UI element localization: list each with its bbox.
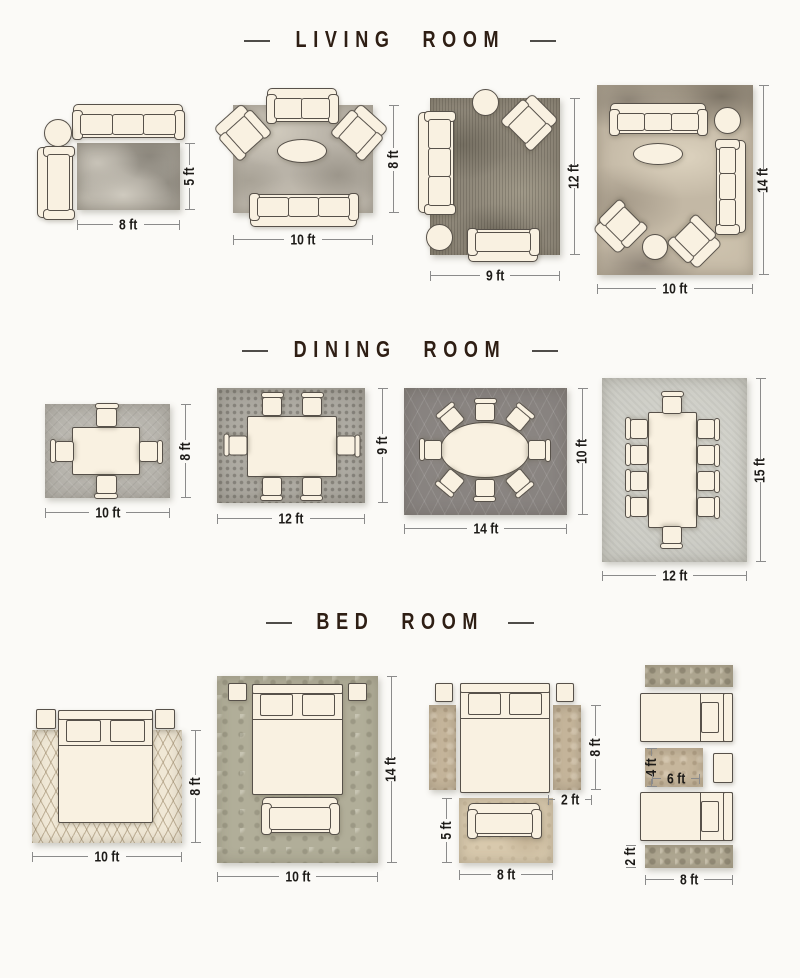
loveseat — [468, 803, 540, 837]
blanket-line — [461, 718, 549, 719]
dining-chair — [697, 497, 715, 517]
rug-height-dimension: 8 ft — [385, 105, 401, 213]
seat-cushion — [80, 114, 113, 135]
rug-height-dimension: 5 ft — [181, 143, 197, 210]
seat-cushions — [475, 813, 533, 834]
nightstand — [556, 683, 574, 702]
dining-chair — [262, 477, 282, 496]
dining-chair — [424, 440, 442, 460]
round-side-table — [44, 119, 72, 147]
pillow — [110, 720, 145, 742]
seat-cushion — [719, 173, 736, 200]
seat-cushion — [428, 176, 451, 206]
rug-height-dimension: 12 ft — [566, 98, 582, 255]
pillow — [66, 720, 101, 742]
chaise — [37, 147, 73, 218]
seat-cushion — [47, 154, 70, 211]
pillow — [468, 693, 501, 715]
round-ottoman — [426, 224, 453, 251]
rug-size-guide-infographic: LIVING ROOM 8 ft 5 ft 10 ft 8 ft 9 ft 12… — [0, 0, 800, 978]
area-rug — [77, 143, 180, 210]
round-ottoman — [714, 107, 741, 134]
seat-cushions — [269, 807, 331, 830]
dining-chair — [662, 526, 682, 544]
rug-width-dimension: 9 ft — [430, 267, 560, 283]
dining-chair — [96, 475, 117, 494]
oval-coffee-table — [277, 139, 327, 163]
rug-height-dimension: 8 ft — [177, 404, 193, 498]
foot-rug-height-dimension: 5 ft — [438, 798, 454, 863]
twin-bed — [640, 693, 733, 742]
bench — [262, 797, 338, 833]
seat-cushion — [269, 807, 331, 830]
sofa — [610, 103, 706, 134]
nightstand — [36, 709, 56, 729]
sofa — [250, 194, 357, 227]
center-rug-width-dimension: 6 ft — [652, 770, 700, 786]
rug-width-dimension: 8 ft — [77, 216, 180, 232]
dining-chair — [630, 497, 648, 517]
dining-chair — [139, 441, 158, 462]
nightstand — [348, 683, 367, 701]
seat-cushions — [719, 147, 736, 226]
foot-rug-width-dimension: 8 ft — [459, 866, 553, 882]
dining-table — [648, 412, 697, 528]
rug-height-dimension: 14 ft — [755, 85, 771, 275]
rug-width-dimension: 12 ft — [217, 510, 365, 526]
bed — [460, 683, 550, 793]
seat-cushion — [671, 113, 699, 131]
rug-width-dimension: 10 ft — [217, 868, 378, 884]
dining-chair — [630, 445, 648, 465]
dining-table — [247, 416, 337, 477]
rug-height-dimension: 10 ft — [574, 388, 590, 515]
pillow — [701, 801, 719, 832]
rug-width-dimension: 10 ft — [32, 848, 182, 864]
headboard — [723, 792, 733, 842]
seat-cushion — [318, 197, 350, 217]
seat-cushion — [475, 813, 533, 834]
loveseat — [468, 229, 538, 262]
seat-cushions — [274, 98, 330, 119]
seat-cushions — [80, 114, 176, 135]
sofa — [73, 104, 183, 138]
runner-rug — [645, 665, 733, 687]
rug-width-dimension: 10 ft — [597, 280, 753, 296]
nightstand — [713, 753, 733, 783]
runner-width-dimension: 2 ft — [548, 791, 592, 807]
sofa — [716, 140, 746, 233]
sofa — [418, 112, 454, 213]
seat-cushions — [617, 113, 699, 131]
nightstand — [435, 683, 453, 702]
rug-width-dimension: 12 ft — [602, 567, 747, 583]
round-ottoman — [472, 89, 499, 116]
rug-height-dimension: 15 ft — [752, 378, 768, 562]
twin-bed — [640, 792, 733, 841]
round-ottoman — [642, 234, 668, 260]
dining-chair — [229, 436, 248, 456]
pillow — [302, 694, 335, 716]
seat-cushion — [428, 148, 451, 178]
seat-cushion — [617, 113, 645, 131]
headboard — [58, 710, 154, 720]
seat-cushion — [719, 199, 736, 226]
dining-chair — [662, 396, 682, 414]
dining-chair — [475, 479, 495, 497]
dining-chair — [302, 397, 322, 416]
seat-cushion — [257, 197, 289, 217]
pillow — [701, 702, 719, 733]
dining-chair — [630, 419, 648, 439]
runner-length-dimension: 8 ft — [587, 705, 603, 790]
seat-cushion — [143, 114, 176, 135]
dining-chair — [262, 397, 282, 416]
dining-chair — [475, 403, 495, 421]
seat-cushions — [428, 119, 451, 206]
dining-chair — [302, 477, 322, 496]
runner-rug — [645, 845, 733, 868]
seat-cushion — [428, 119, 451, 149]
seat-cushion — [301, 98, 330, 119]
pillow — [509, 693, 542, 715]
dining-table — [72, 427, 140, 475]
headboard — [723, 693, 733, 743]
seat-cushion — [475, 232, 531, 252]
seat-cushion — [274, 98, 303, 119]
nightstand — [228, 683, 247, 701]
nightstand — [155, 709, 175, 729]
rug-width-dimension: 14 ft — [404, 520, 567, 536]
pillow — [260, 694, 293, 716]
dining-chair — [630, 471, 648, 491]
bed — [58, 710, 153, 823]
dining-chair — [697, 419, 715, 439]
rug-width-dimension: 10 ft — [233, 231, 373, 247]
dining-chair — [697, 445, 715, 465]
headboard — [252, 684, 344, 694]
oval-coffee-table — [633, 143, 683, 165]
seat-cushions — [47, 154, 70, 211]
runner-rug — [553, 705, 581, 790]
seat-cushion — [719, 147, 736, 174]
runner-rug — [429, 705, 456, 790]
dining-chair — [55, 441, 74, 462]
seat-cushion — [644, 113, 672, 131]
sofa — [267, 88, 337, 122]
dining-chair — [337, 436, 356, 456]
dining-chair — [697, 471, 715, 491]
dining-chair — [528, 440, 546, 460]
rug-height-dimension: 8 ft — [187, 730, 203, 843]
blanket-line — [59, 745, 152, 746]
headboard — [460, 683, 551, 693]
seat-cushions — [475, 232, 531, 252]
runner-height-dimension: 2 ft — [622, 845, 638, 868]
rug-height-dimension: 14 ft — [383, 676, 399, 863]
dining-chair — [96, 408, 117, 427]
runner-length-dimension: 8 ft — [645, 871, 733, 887]
seat-cushions — [257, 197, 350, 217]
seat-cushion — [288, 197, 320, 217]
rug-height-dimension: 9 ft — [374, 388, 390, 503]
rug-width-dimension: 10 ft — [45, 504, 170, 520]
seat-cushion — [112, 114, 145, 135]
blanket-line — [253, 719, 342, 720]
bed — [252, 684, 343, 795]
